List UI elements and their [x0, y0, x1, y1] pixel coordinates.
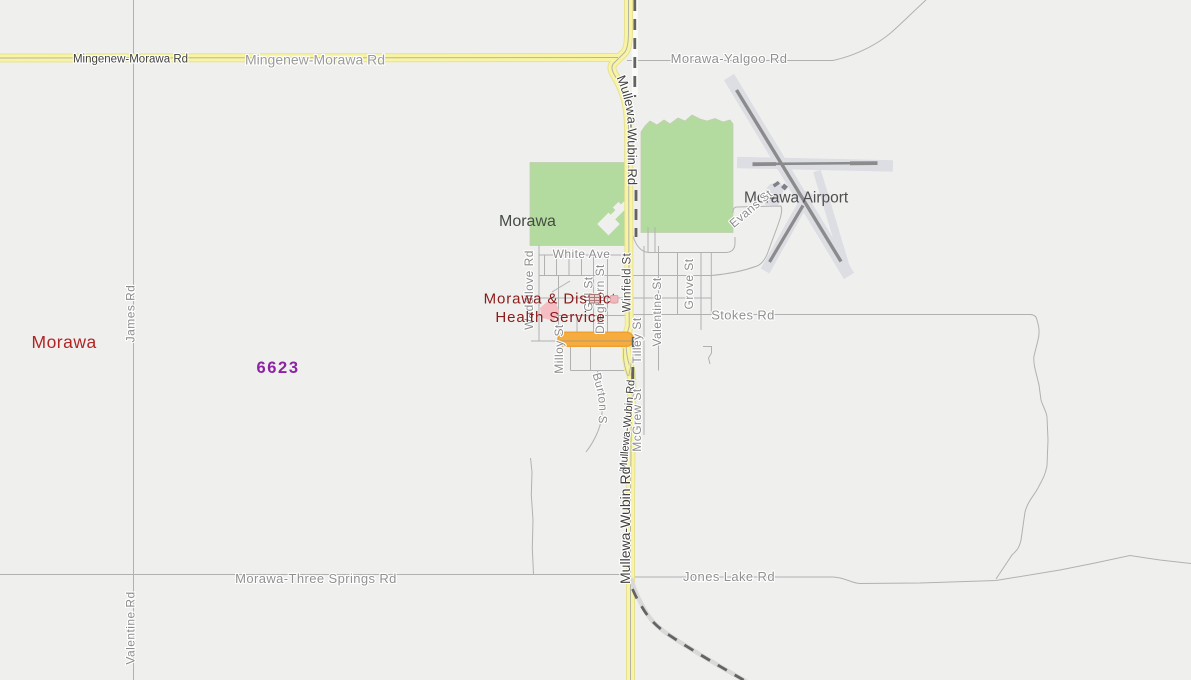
svg-text:White Ave: White Ave	[553, 247, 611, 261]
svg-text:6623: 6623	[257, 359, 300, 377]
svg-text:Morawa: Morawa	[32, 332, 97, 352]
svg-text:Morawa: Morawa	[499, 213, 556, 230]
svg-text:Jones Lake Rd: Jones Lake Rd	[683, 569, 775, 584]
svg-text:Winfield St: Winfield St	[622, 252, 634, 312]
svg-text:Milloy St: Milloy St	[552, 324, 566, 374]
svg-text:Health Service: Health Service	[495, 309, 605, 326]
svg-text:Mullewa-Wubin Rd: Mullewa-Wubin Rd	[617, 467, 633, 584]
svg-text:Valentine St: Valentine St	[650, 277, 664, 346]
svg-text:Morawa-Yalgoo Rd: Morawa-Yalgoo Rd	[671, 51, 788, 66]
svg-text:Valentine Rd: Valentine Rd	[124, 591, 138, 664]
svg-text:James Rd: James Rd	[124, 285, 138, 343]
svg-text:Mingenew-Morawa Rd: Mingenew-Morawa Rd	[73, 54, 188, 66]
svg-text:Mingenew-Morawa Rd: Mingenew-Morawa Rd	[245, 52, 385, 68]
svg-text:Grove St: Grove St	[682, 258, 696, 309]
svg-text:Stokes Rd: Stokes Rd	[711, 308, 775, 323]
svg-text:Morawa-Three Springs Rd: Morawa-Three Springs Rd	[235, 571, 397, 586]
svg-text:Tilley St: Tilley St	[630, 317, 644, 363]
